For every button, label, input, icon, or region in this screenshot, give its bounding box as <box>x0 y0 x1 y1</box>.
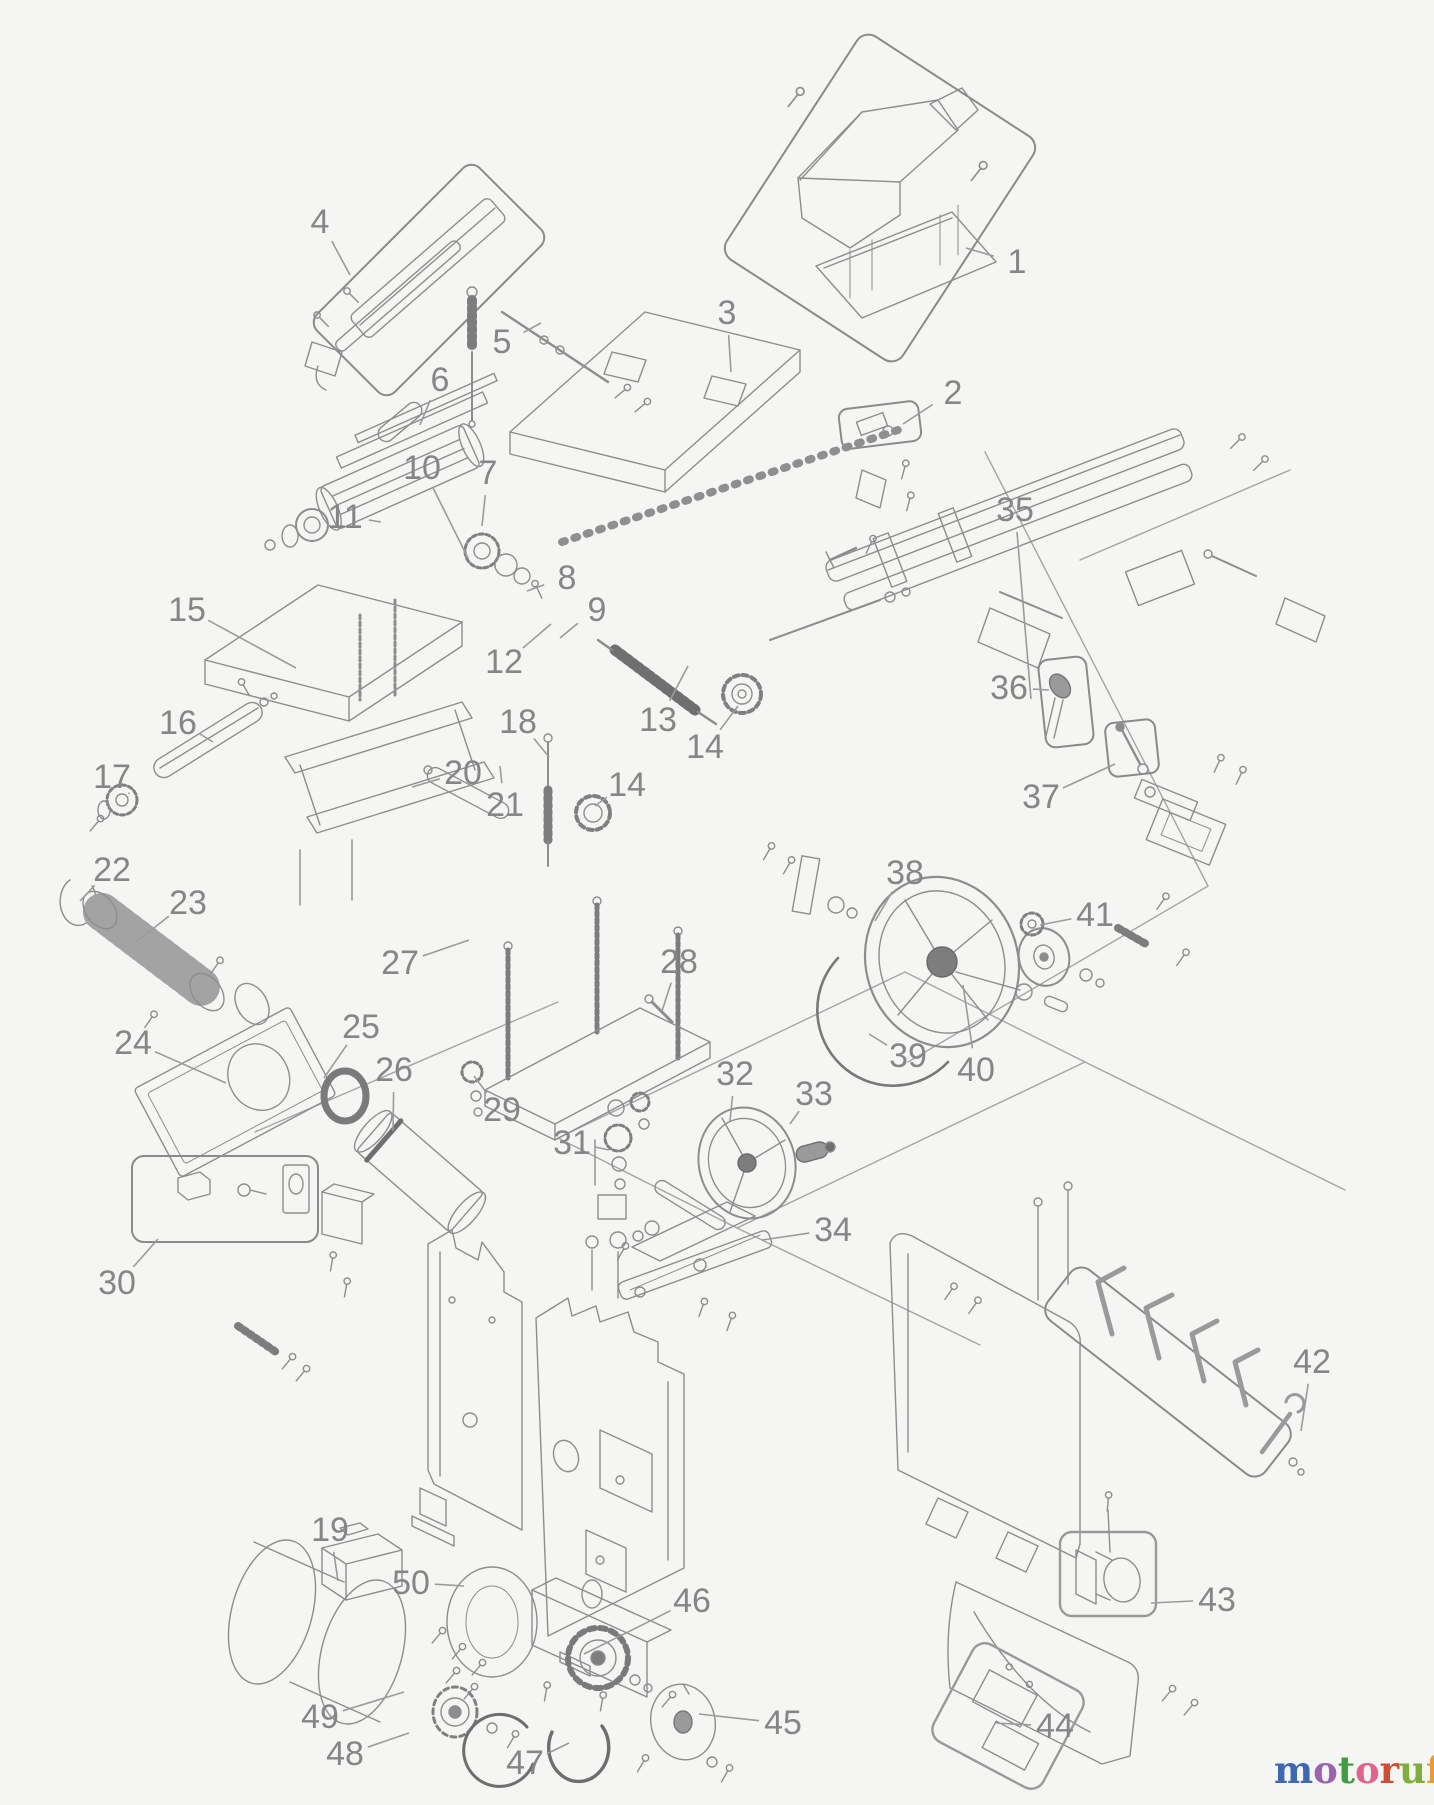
leader-line-24 <box>155 1052 226 1083</box>
part-number-9: 9 <box>588 591 607 629</box>
part-number-46: 46 <box>673 1582 711 1620</box>
part-number-14: 14 <box>608 766 646 804</box>
callout-42: 42 <box>1293 1343 1331 1431</box>
callout-10: 10 <box>403 449 468 558</box>
rear-panel-group <box>890 1182 1199 1764</box>
logo-letter: o <box>1355 1748 1380 1792</box>
fence-group <box>824 427 1325 865</box>
leader-line-9 <box>560 623 578 638</box>
part-number-39: 39 <box>889 1037 927 1075</box>
callout-5: 5 <box>493 323 541 361</box>
leader-line-30 <box>133 1239 158 1267</box>
leader-line-48 <box>368 1733 409 1747</box>
part-number-32: 32 <box>716 1055 754 1093</box>
part-number-44: 44 <box>1036 1707 1074 1745</box>
part-number-27: 27 <box>381 944 419 982</box>
part-4-guard-group <box>305 160 549 445</box>
part-number-2: 2 <box>944 374 963 412</box>
part-number-5: 5 <box>493 323 512 361</box>
leader-line-7 <box>482 495 485 526</box>
callout-47: 47 <box>506 1743 569 1782</box>
logo-letter: m <box>1274 1748 1313 1792</box>
part-number-14: 14 <box>686 728 724 766</box>
leader-line-28 <box>662 983 671 1011</box>
callout-16: 16 <box>159 704 213 742</box>
leader-line-19 <box>334 1552 338 1581</box>
part-number-15: 15 <box>168 591 206 629</box>
part-number-18: 18 <box>499 703 537 741</box>
part-number-17: 17 <box>93 758 131 796</box>
part-number-38: 38 <box>886 854 924 892</box>
part-number-48: 48 <box>326 1735 364 1773</box>
leader-line-27 <box>423 940 469 956</box>
part-number-1: 1 <box>1008 243 1027 281</box>
part-number-41: 41 <box>1076 896 1114 934</box>
leader-line-4 <box>332 241 350 275</box>
exploded-diagram-svg: 1234567891011121314141516171819202122232… <box>0 0 1434 1800</box>
callout-35: 35 <box>996 491 1034 699</box>
part-number-22: 22 <box>93 851 131 889</box>
part-number-40: 40 <box>957 1051 995 1089</box>
tool-plate-group <box>1040 1262 1304 1482</box>
callout-25: 25 <box>324 1008 380 1078</box>
callout-6: 6 <box>420 361 449 425</box>
callout-4: 4 <box>311 203 350 275</box>
part-number-16: 16 <box>159 704 197 742</box>
logo-letter: o <box>1313 1748 1338 1792</box>
leader-line-39 <box>869 1034 887 1045</box>
crank-group <box>598 1096 835 1298</box>
leader-line-3 <box>729 335 731 372</box>
part-number-43: 43 <box>1198 1581 1236 1619</box>
callout-11: 11 <box>327 498 381 536</box>
part-number-49: 49 <box>301 1698 339 1736</box>
part-number-19: 19 <box>311 1511 349 1549</box>
leader-line-31 <box>596 1147 609 1150</box>
callout-30: 30 <box>98 1239 158 1302</box>
leader-line-43 <box>1151 1601 1193 1603</box>
leader-line-36 <box>1033 689 1049 690</box>
part-number-8: 8 <box>558 559 577 597</box>
callout-15: 15 <box>168 591 296 668</box>
logo-letter: r <box>1380 1748 1400 1792</box>
leader-line-44 <box>996 1723 1031 1725</box>
leader-line-14 <box>720 706 738 730</box>
part-number-29: 29 <box>483 1091 521 1129</box>
part-number-31: 31 <box>553 1124 591 1162</box>
callout-18: 18 <box>499 703 549 757</box>
callout-17: 17 <box>93 758 131 796</box>
part-number-50: 50 <box>392 1564 430 1602</box>
callout-9: 9 <box>560 591 606 638</box>
callout-41: 41 <box>1040 896 1114 934</box>
leader-line-41 <box>1040 919 1071 925</box>
callout-7: 7 <box>479 454 498 526</box>
callout-49: 49 <box>301 1692 404 1736</box>
part-number-24: 24 <box>114 1024 152 1062</box>
part-number-20: 20 <box>444 754 482 792</box>
leader-line-26 <box>393 1092 394 1131</box>
logo-letter: f <box>1426 1748 1434 1792</box>
perspective-outline <box>255 452 1345 1345</box>
leader-line-11 <box>369 520 381 522</box>
callout-44: 44 <box>996 1707 1074 1745</box>
callout-39: 39 <box>869 1034 927 1075</box>
part-number-47: 47 <box>506 1744 544 1782</box>
callout-8: 8 <box>527 559 576 597</box>
logo-letter: t <box>1338 1748 1355 1792</box>
part-1-cover-group <box>720 29 1041 366</box>
part-number-11: 11 <box>327 498 362 536</box>
part-number-7: 7 <box>479 454 498 492</box>
leader-line-49 <box>343 1692 404 1711</box>
callout-50: 50 <box>392 1564 464 1602</box>
leader-line-8 <box>527 585 544 591</box>
part-number-25: 25 <box>342 1008 380 1046</box>
callout-26: 26 <box>375 1051 413 1131</box>
part-number-23: 23 <box>169 884 207 922</box>
callout-3: 3 <box>718 294 737 372</box>
leader-line-37 <box>1063 764 1115 788</box>
leader-line-10 <box>433 488 468 558</box>
switch-box-group <box>132 1156 374 1383</box>
motor-group <box>213 1523 734 1786</box>
callout-34: 34 <box>762 1211 852 1249</box>
callout-20: 20 <box>412 754 482 792</box>
part-number-21: 21 <box>486 786 524 824</box>
callout-32: 32 <box>716 1055 754 1121</box>
part-number-37: 37 <box>1022 778 1060 816</box>
callout-2: 2 <box>903 374 962 424</box>
part-number-10: 10 <box>403 449 441 487</box>
handwheel-group <box>761 842 1191 1086</box>
part-number-30: 30 <box>98 1264 136 1302</box>
part-number-6: 6 <box>431 361 450 399</box>
part-number-33: 33 <box>795 1075 833 1113</box>
part-number-45: 45 <box>764 1704 802 1742</box>
logo-letter: u <box>1399 1748 1426 1792</box>
callout-33: 33 <box>790 1075 833 1124</box>
part-number-35: 35 <box>996 491 1034 529</box>
leader-line-16 <box>199 734 213 743</box>
part-number-34: 34 <box>814 1211 852 1249</box>
part-number-4: 4 <box>311 203 330 241</box>
leader-line-21 <box>500 766 502 783</box>
motoruf-watermark: motoruf'.de <box>1274 1752 1434 1789</box>
part-number-13: 13 <box>639 701 677 739</box>
callout-14: 14 <box>595 766 646 806</box>
knob-box-group <box>1060 1492 1156 1616</box>
callout-37: 37 <box>1022 764 1115 816</box>
leader-line-33 <box>790 1111 799 1124</box>
callout-38: 38 <box>875 854 924 921</box>
callout-48: 48 <box>326 1733 409 1773</box>
leader-line-15 <box>208 620 296 668</box>
part-number-3: 3 <box>718 294 737 332</box>
part-number-26: 26 <box>375 1051 413 1089</box>
diagram-page: 1234567891011121314141516171819202122232… <box>0 0 1434 1800</box>
part-number-42: 42 <box>1293 1343 1331 1381</box>
infeed-table-group <box>88 585 462 833</box>
leader-line-12 <box>523 624 551 648</box>
part-number-36: 36 <box>990 669 1028 707</box>
leader-line-45 <box>699 1714 759 1721</box>
callout-43: 43 <box>1151 1581 1236 1619</box>
callout-12: 12 <box>485 624 551 681</box>
part-number-28: 28 <box>660 943 698 981</box>
callout-23: 23 <box>136 884 207 942</box>
diagram-artwork <box>60 29 1345 1793</box>
part-number-12: 12 <box>485 643 523 681</box>
callout-27: 27 <box>381 940 469 982</box>
callout-24: 24 <box>114 1024 226 1083</box>
callout-31: 31 <box>553 1124 609 1162</box>
